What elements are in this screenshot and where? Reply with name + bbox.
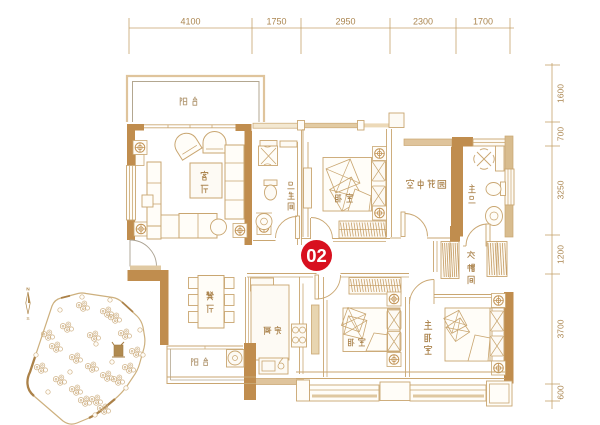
svg-text:600: 600: [556, 385, 566, 399]
svg-text:1750: 1750: [266, 17, 286, 27]
svg-text:1200: 1200: [556, 245, 566, 264]
svg-text:N: N: [26, 287, 30, 293]
svg-text:S: S: [26, 316, 29, 322]
svg-text:1600: 1600: [556, 84, 566, 103]
svg-text:700: 700: [556, 127, 566, 141]
svg-text:02: 02: [306, 245, 327, 266]
svg-text:3700: 3700: [556, 319, 566, 338]
svg-text:2950: 2950: [335, 17, 355, 27]
svg-text:4100: 4100: [180, 17, 200, 27]
svg-text:3250: 3250: [556, 180, 566, 199]
svg-text:2300: 2300: [413, 17, 433, 27]
svg-text:1700: 1700: [473, 17, 493, 27]
